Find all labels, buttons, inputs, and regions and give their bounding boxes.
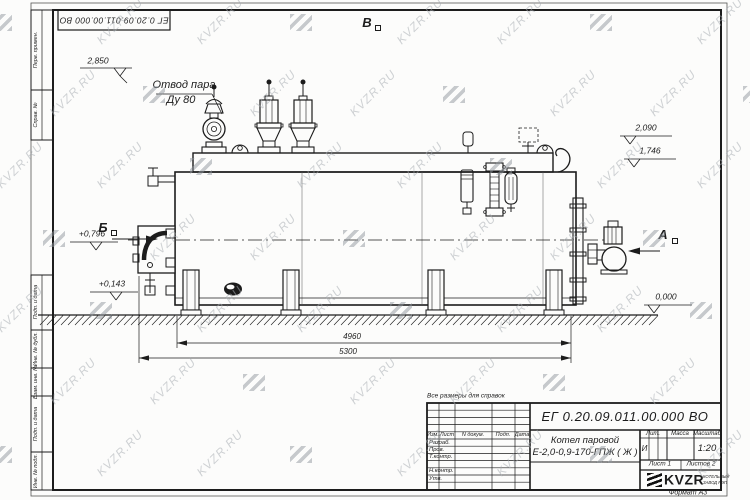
- row-nkontr: Н.контр.: [429, 468, 454, 474]
- header-lit: Лит.: [646, 431, 660, 437]
- title-block-name-line2: Е-2,0-0,9-170-ГПЖ ( Ж ): [533, 448, 638, 458]
- elevation-base: +0,143: [99, 280, 125, 289]
- elevation-valve-top: 2,850: [87, 57, 108, 66]
- safety-valve-2: [289, 80, 317, 154]
- dim-body-length: 4960: [343, 333, 361, 341]
- view-ref-box-a: [672, 238, 678, 244]
- steam-outlet-valve: [202, 85, 226, 154]
- lifting-lugs: [232, 145, 570, 172]
- elevation-burner-axis: +0,796: [79, 230, 105, 239]
- header-mass: Масса: [671, 431, 689, 437]
- row-tkontr: Т.контр.: [429, 454, 452, 460]
- view-label-v: В: [362, 16, 371, 30]
- kvzr-logo-text: KVZR: [664, 473, 704, 488]
- view-ref-box-b: [111, 230, 117, 236]
- row-utv: Утв.: [429, 476, 442, 482]
- col-izm: Изм.: [427, 433, 439, 439]
- border-stamp-podp-data-2: Подп. и дата: [34, 407, 40, 441]
- col-ndoc: N докум.: [462, 433, 484, 439]
- border-stamp-sprav-no: Справ. №: [34, 103, 40, 128]
- view-label-a: А: [658, 228, 667, 242]
- liter-value: И: [642, 445, 648, 453]
- format-note: Формат А3: [669, 489, 707, 496]
- drawing-canvas: [0, 0, 750, 500]
- title-block-name-line1: Котел паровой: [551, 436, 619, 446]
- row-prov: Пров.: [429, 447, 444, 453]
- leaders-and-view-arrows: [112, 94, 660, 255]
- dim-overall-length: 5300: [339, 348, 357, 356]
- elevation-shell-top: 1,746: [639, 147, 660, 156]
- title-block-doc-number: ЕГ 0.20.09.011.00.000 ВО: [542, 410, 709, 424]
- border-stamp-podp-data-1: Подп. и дата: [34, 285, 40, 319]
- water-gauges: [461, 163, 517, 216]
- elevation-ground: 0,000: [655, 293, 676, 302]
- view-ref-box-v: [375, 25, 381, 31]
- safety-valve-1: [255, 80, 283, 154]
- drum-top-fittings: [463, 128, 538, 153]
- border-stamp-perv-primen: Перв. примен.: [34, 32, 40, 69]
- steam-outlet-dn-label: Ду 80: [167, 95, 196, 107]
- row-razrab: Разраб.: [429, 440, 450, 446]
- kvzr-logo-sub2: ЗАВОД РЭП: [703, 481, 727, 485]
- boiler-shell: [128, 153, 606, 305]
- kvzr-logo-icon: [647, 473, 662, 487]
- steam-outlet-label: Отвод пара: [153, 80, 216, 92]
- sheets-value: Листов 2: [686, 462, 715, 469]
- scale-value: 1:20: [698, 444, 717, 454]
- reference-note: Все размеры для справок: [427, 394, 505, 401]
- elevation-drum-top: 2,090: [635, 124, 656, 133]
- ground-line: [38, 315, 658, 325]
- col-data: Дата: [515, 433, 530, 439]
- header-scale: Масштаб: [693, 431, 721, 437]
- border-stamp-inv-dubl: Инв. № дубл.: [34, 332, 40, 366]
- kvzr-logo-sub1: КОТЕЛЬНЫЙ: [703, 475, 729, 479]
- flue-fan: [570, 198, 627, 304]
- elevation-marks: [70, 68, 692, 313]
- sheet-value: Лист 1: [649, 462, 671, 469]
- col-podp: Подп.: [496, 433, 511, 439]
- border-stamp-inv-podl: Инв. № подл.: [34, 454, 40, 488]
- col-list: Лист: [440, 433, 454, 439]
- border-stamp-vzam-inv: Взам. инв. №: [34, 365, 40, 399]
- top-stamp-doc-number: ЕГ 0.20.09.011.00.000 ВО: [59, 16, 168, 25]
- drawing-sheet: ЕГ 0.20.09.011.00.000 ВО Перв. примен. С…: [0, 0, 750, 500]
